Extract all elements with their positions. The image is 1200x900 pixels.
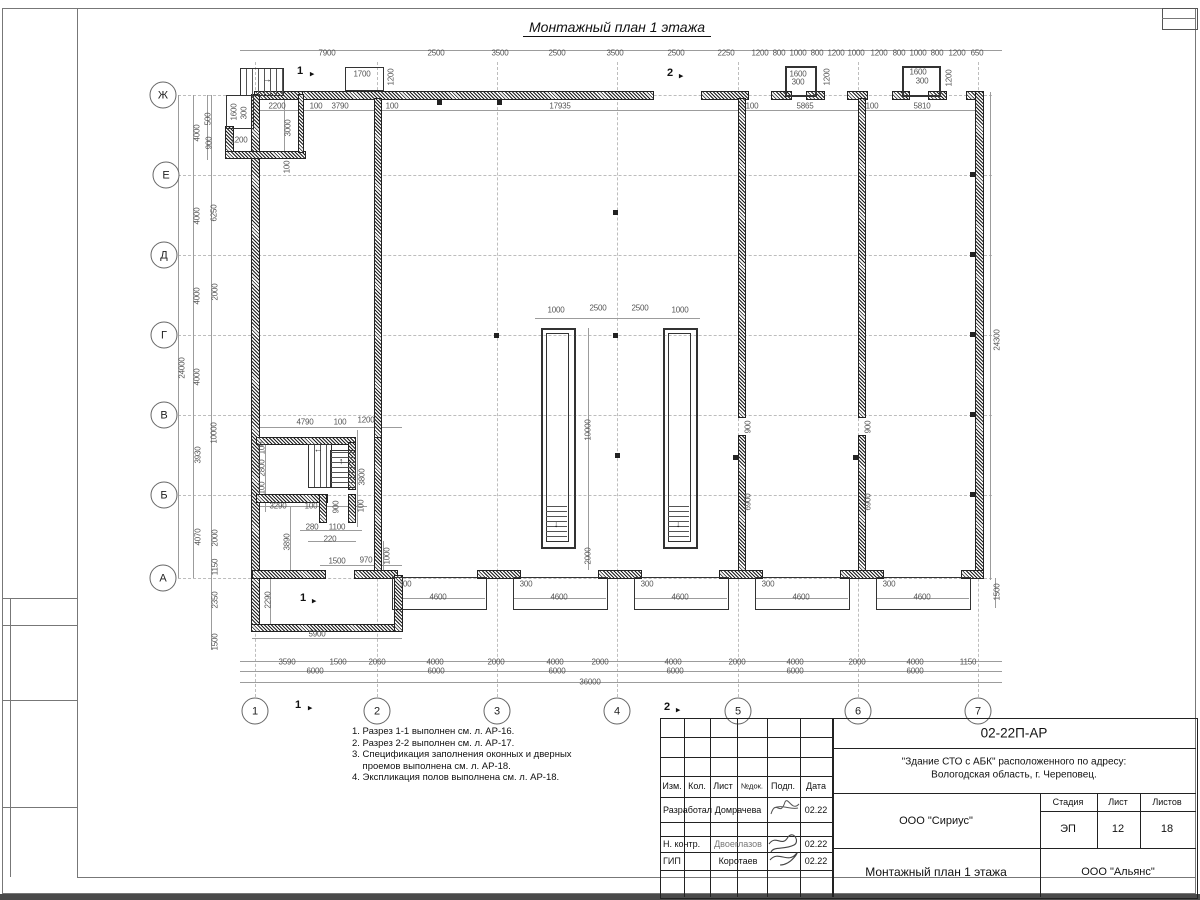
axis-bubble: Е — [153, 162, 180, 189]
column-mark — [970, 332, 975, 337]
dimension-label: 1700 — [354, 70, 371, 79]
dimension-label: 2200 — [269, 102, 286, 111]
dimension-label: 1500 — [211, 634, 220, 651]
frame-line — [77, 8, 78, 877]
column-mark — [615, 453, 620, 458]
section-mark: 1 — [295, 699, 301, 711]
stamp-line — [660, 737, 832, 738]
axis-bubble: Г — [151, 322, 178, 349]
dimension-line — [252, 638, 402, 639]
dimension-label: 1000 — [672, 306, 689, 315]
dimension-label: 4600 — [793, 593, 810, 602]
dimension-label: 2290 — [264, 592, 273, 609]
note-line: 1. Разрез 1-1 выполнен см. л. АР-16. — [352, 726, 572, 738]
dimension-label: 220 — [324, 535, 337, 544]
dimension-label: 3790 — [332, 102, 349, 111]
wall — [355, 571, 397, 578]
dimension-line — [535, 318, 700, 319]
dimension-label: 3290 — [270, 502, 287, 511]
stage-value: ЭП — [1060, 823, 1076, 835]
wall — [303, 92, 653, 99]
dimension-label: 2000 — [592, 658, 609, 667]
dimension-label: 4070 — [194, 529, 203, 546]
note-line: 4. Экспликация полов выполнена см. л. АР… — [352, 772, 572, 784]
column-mark — [970, 252, 975, 257]
dimension-label: 300 — [916, 77, 929, 86]
dimension-label: 2250 — [718, 49, 735, 58]
dimension-label: 6000 — [787, 667, 804, 676]
direction-arrow-icon: → — [263, 74, 272, 84]
stamp-line — [660, 852, 832, 853]
dimension-line — [588, 328, 589, 570]
dimension-label: 3890 — [283, 534, 292, 551]
dimension-label: 1000 — [383, 548, 392, 565]
dimension-label: 900 — [744, 421, 753, 434]
dimension-label: 4000 — [787, 658, 804, 667]
wall — [299, 95, 303, 152]
section-mark: 1 — [300, 592, 306, 604]
direction-arrow-icon: ↓ — [554, 519, 558, 529]
dimension-label: 1000 — [848, 49, 865, 58]
axis-bubble: В — [151, 402, 178, 429]
axis-line-vertical — [617, 62, 618, 697]
dimension-label: 3500 — [607, 49, 624, 58]
dimension-label: 4600 — [430, 593, 447, 602]
dimension-label: 100 — [357, 500, 366, 513]
dimension-label: 2350 — [211, 592, 220, 609]
dimension-label: 800 — [773, 49, 786, 58]
direction-arrow-icon: ← — [314, 444, 323, 454]
dimension-label: 1600 — [910, 68, 927, 77]
direction-arrow-icon: ▸ — [308, 703, 312, 714]
dimension-label: 100 — [258, 482, 267, 495]
dimension-label: 4000 — [193, 288, 202, 305]
wall — [257, 438, 355, 444]
dimension-label: 6900 — [744, 494, 753, 511]
stamp-role: Н. контр. — [663, 839, 700, 849]
dimension-label: 4600 — [914, 593, 931, 602]
wall — [375, 99, 381, 438]
dimension-label: 2500 — [590, 304, 607, 313]
object-address-line2: Вологодская область, г. Череповец. — [931, 770, 1097, 781]
dimension-label: 300 — [762, 580, 775, 589]
margin-stamp-line — [2, 598, 77, 599]
notes-block: 1. Разрез 1-1 выполнен см. л. АР-16.2. Р… — [352, 726, 572, 784]
dimension-label: 2000 — [211, 530, 220, 547]
dimension-line — [240, 671, 1002, 672]
drawing-name: Монтажный план 1 этажа — [865, 865, 1007, 879]
dimension-label: 300 — [792, 78, 805, 87]
dimension-label: 100 — [305, 502, 318, 511]
stamp-line — [660, 757, 832, 758]
dimension-label: 1000 — [548, 306, 565, 315]
sheets-label: Листов — [1152, 797, 1181, 807]
dimension-label: 5810 — [914, 102, 931, 111]
direction-arrow-icon: ▸ — [310, 69, 314, 80]
column-mark — [613, 333, 618, 338]
section-mark: 1 — [297, 65, 303, 77]
dimension-label: 4000 — [547, 658, 564, 667]
dimension-label: 3930 — [194, 447, 203, 464]
wall — [859, 99, 865, 417]
dimension-line — [240, 682, 1002, 683]
stamp-line — [1040, 811, 1196, 812]
frame-line — [2, 8, 3, 893]
stamp-role: ГИП — [663, 856, 681, 866]
stamp-name: Коротаев — [719, 856, 758, 866]
stamp-line — [832, 718, 834, 897]
dimension-label: 6250 — [210, 205, 219, 222]
dimension-label: 1500 — [330, 658, 347, 667]
stamp-header-kol: Кол. — [688, 781, 706, 791]
wall — [976, 92, 983, 578]
sheets-total: 18 — [1161, 823, 1173, 835]
axis-line-vertical — [497, 62, 498, 697]
dimension-line — [178, 95, 179, 578]
axis-bubble: 4 — [604, 698, 631, 725]
direction-arrow-icon: ↓ — [676, 519, 680, 529]
dimension-label: 1100 — [329, 523, 345, 532]
dimension-label: 100 — [866, 102, 879, 111]
stamp-header-data: Дата — [806, 781, 826, 791]
dimension-label: 6000 — [307, 667, 324, 676]
dimension-label: 4000 — [193, 208, 202, 225]
corner-stamp-box — [1162, 8, 1198, 30]
dimension-label: 2000 — [488, 658, 505, 667]
dimension-label: 1500 — [329, 557, 346, 566]
dimension-label: 1500 — [993, 584, 1002, 601]
sheet-label: Лист — [1108, 797, 1128, 807]
wall — [702, 92, 748, 99]
dimension-label: 1000 — [790, 49, 807, 58]
dimension-label: 280 — [306, 523, 319, 532]
dimension-label: 650 — [971, 49, 984, 58]
note-line: 2. Разрез 2-2 выполнен см. л. АР-17. — [352, 738, 572, 750]
dimension-label: 6900 — [864, 494, 873, 511]
column-mark — [970, 172, 975, 177]
dimension-label: 10000 — [210, 422, 219, 443]
stamp-line — [1040, 793, 1041, 897]
dimension-label: 500 — [204, 113, 213, 126]
stamp-date: 02.22 — [805, 839, 828, 849]
stamp-date: 02.22 — [805, 856, 828, 866]
dimension-label: 2000 — [211, 284, 220, 301]
dimension-label: 2500 — [632, 304, 649, 313]
dimension-line — [240, 661, 1002, 662]
axis-bubble: 3 — [484, 698, 511, 725]
stage-label: Стадия — [1053, 797, 1084, 807]
direction-arrow-icon: ▸ — [312, 596, 316, 607]
margin-stamp-line — [2, 807, 77, 808]
dimension-line — [193, 95, 194, 578]
dimension-line — [207, 95, 208, 160]
dimension-label: 4000 — [193, 369, 202, 386]
dimension-label: 1200 — [828, 49, 845, 58]
stamp-header-ndoc: №док. — [741, 782, 763, 791]
axis-bubble: Ж — [150, 82, 177, 109]
dimension-label: 10000 — [584, 419, 593, 440]
drawing-title: Монтажный план 1 этажа — [523, 19, 711, 37]
axis-line-horizontal — [178, 335, 992, 336]
dimension-label: 3800 — [358, 469, 367, 486]
column-mark — [613, 210, 618, 215]
stamp-line — [660, 822, 832, 823]
dimension-label: 7900 — [319, 49, 336, 58]
dimension-label: 5900 — [309, 630, 326, 639]
frame-line — [2, 8, 1196, 9]
dimension-label: 800 — [811, 49, 824, 58]
stamp-line — [660, 797, 832, 798]
wall — [253, 571, 325, 578]
wall — [226, 152, 305, 158]
stamp-header-list: Лист — [713, 781, 733, 791]
column-mark — [853, 455, 858, 460]
dimension-label: 900 — [864, 421, 873, 434]
dimension-label: 2000 — [729, 658, 746, 667]
dimension-label: 36000 — [579, 678, 600, 687]
dimension-label: 300 — [240, 107, 249, 120]
dimension-label: 4000 — [907, 658, 924, 667]
axis-bubble: Б — [151, 482, 178, 509]
column-mark — [970, 492, 975, 497]
dimension-label: 900 — [205, 137, 214, 150]
dimension-label: 4000 — [665, 658, 682, 667]
axis-line-horizontal — [178, 175, 992, 176]
wall — [848, 92, 867, 99]
dimension-label: 1200 — [231, 136, 248, 145]
signature-scribble — [768, 796, 802, 820]
stamp-name: Домрачева — [715, 805, 762, 815]
stamp-line — [660, 836, 832, 837]
stamp-line — [660, 776, 832, 777]
margin-stamp-line — [2, 700, 77, 701]
stamp-line — [832, 748, 1196, 749]
stamp-line — [660, 870, 832, 871]
dimension-label: 100 — [258, 442, 267, 455]
dimension-label: 4790 — [297, 418, 314, 427]
dimension-label: 1600 — [230, 104, 239, 121]
dimension-label: 4000 — [193, 125, 202, 142]
axis-bubble: 2 — [364, 698, 391, 725]
dimension-label: 1200 — [752, 49, 769, 58]
dimension-label: 1150 — [211, 559, 220, 575]
direction-arrow-icon: ▸ — [679, 71, 683, 82]
dimension-label: 24000 — [178, 357, 187, 378]
wall — [349, 495, 355, 522]
axis-bubble: 1 — [242, 698, 269, 725]
organization-name-2: ООО "Альянс" — [1081, 866, 1155, 878]
dimension-label: 1200 — [871, 49, 888, 58]
organization-name: ООО "Сириус" — [899, 815, 973, 827]
dimension-label: 6000 — [907, 667, 924, 676]
stamp-date: 02.22 — [805, 805, 828, 815]
note-line: проемов выполнена см. л. АР-18. — [352, 761, 572, 773]
section-mark: 2 — [664, 701, 670, 713]
stamp-line — [832, 793, 1196, 794]
dimension-label: 3590 — [279, 658, 296, 667]
dimension-label: 1200 — [358, 416, 375, 425]
dimension-label: 6000 — [428, 667, 445, 676]
object-address-line1: "Здание СТО с АБК" расположенного по адр… — [902, 757, 1127, 768]
dimension-label: 2060 — [369, 658, 386, 667]
section-mark: 2 — [667, 67, 673, 79]
dimension-label: 2500 — [428, 49, 445, 58]
wall — [739, 99, 745, 417]
dimension-label: 2800 — [258, 460, 267, 477]
dimension-label: 2500 — [549, 49, 566, 58]
dimension-label: 900 — [332, 501, 341, 514]
dimension-label: 800 — [893, 49, 906, 58]
dimension-label: 800 — [931, 49, 944, 58]
dimension-label: 300 — [641, 580, 654, 589]
dimension-label: 1200 — [387, 69, 396, 86]
axis-line-horizontal — [178, 255, 992, 256]
dimension-label: 17935 — [549, 102, 570, 111]
axis-bubble: А — [150, 565, 177, 592]
direction-arrow-icon: ↑ — [339, 456, 343, 466]
dimension-label: 1200 — [945, 70, 954, 87]
dimension-label: 6000 — [549, 667, 566, 676]
wall — [320, 495, 326, 522]
dimension-label: 1000 — [910, 49, 927, 58]
dimension-label: 2000 — [584, 548, 593, 565]
column-mark — [497, 100, 502, 105]
dimension-label: 1150 — [960, 658, 976, 667]
document-code: 02-22П-АР — [981, 726, 1048, 741]
column-mark — [494, 333, 499, 338]
column-mark — [437, 100, 442, 105]
dimension-label: 1200 — [823, 69, 832, 86]
dimension-label: 2500 — [668, 49, 685, 58]
dimension-label: 24300 — [993, 329, 1002, 350]
dimension-label: 1200 — [949, 49, 966, 58]
stamp-name: Двоеглазов — [714, 839, 762, 849]
dimension-label: 6000 — [667, 667, 684, 676]
column-mark — [970, 412, 975, 417]
dimension-label: 2000 — [849, 658, 866, 667]
dimension-label: 100 — [283, 161, 292, 174]
dimension-label: 3000 — [284, 120, 293, 137]
stamp-line — [1140, 793, 1141, 848]
direction-arrow-icon: ▸ — [676, 705, 680, 716]
dimension-line — [990, 92, 991, 580]
wall — [252, 95, 259, 631]
wall — [252, 625, 402, 631]
margin-stamp-line — [2, 625, 77, 626]
stamp-role: Разработал — [663, 805, 712, 815]
wall — [375, 438, 381, 571]
stamp-header-podp: Подп. — [771, 781, 795, 791]
dimension-label: 300 — [520, 580, 533, 589]
dimension-label: 4600 — [551, 593, 568, 602]
dimension-label: 5865 — [797, 102, 814, 111]
corner-stamp-line — [1162, 18, 1196, 19]
stamp-line — [1097, 793, 1098, 848]
dimension-label: 300 — [399, 580, 412, 589]
dimension-label: 100 — [310, 102, 323, 111]
note-line: 3. Спецификация заполнения оконных и две… — [352, 749, 572, 761]
dimension-label: 100 — [386, 102, 399, 111]
stamp-header-izm: Изм. — [662, 781, 681, 791]
dimension-label: 4600 — [672, 593, 689, 602]
dimension-label: 3500 — [492, 49, 509, 58]
stamp-line — [832, 848, 1196, 849]
drawing-sheet: Монтажный план 1 этажа 79002500350025003… — [0, 0, 1200, 900]
sheet-number: 12 — [1112, 823, 1124, 835]
dimension-label: 970 — [360, 556, 373, 565]
dimension-label: 100 — [746, 102, 759, 111]
column-mark — [733, 455, 738, 460]
dimension-label: 300 — [883, 580, 896, 589]
margin-stamp-line — [10, 598, 11, 877]
axis-line-horizontal — [178, 415, 992, 416]
dimension-label: 100 — [334, 418, 347, 427]
dimension-label: 4000 — [427, 658, 444, 667]
signature-scribble — [766, 832, 804, 868]
axis-bubble: Д — [151, 242, 178, 269]
